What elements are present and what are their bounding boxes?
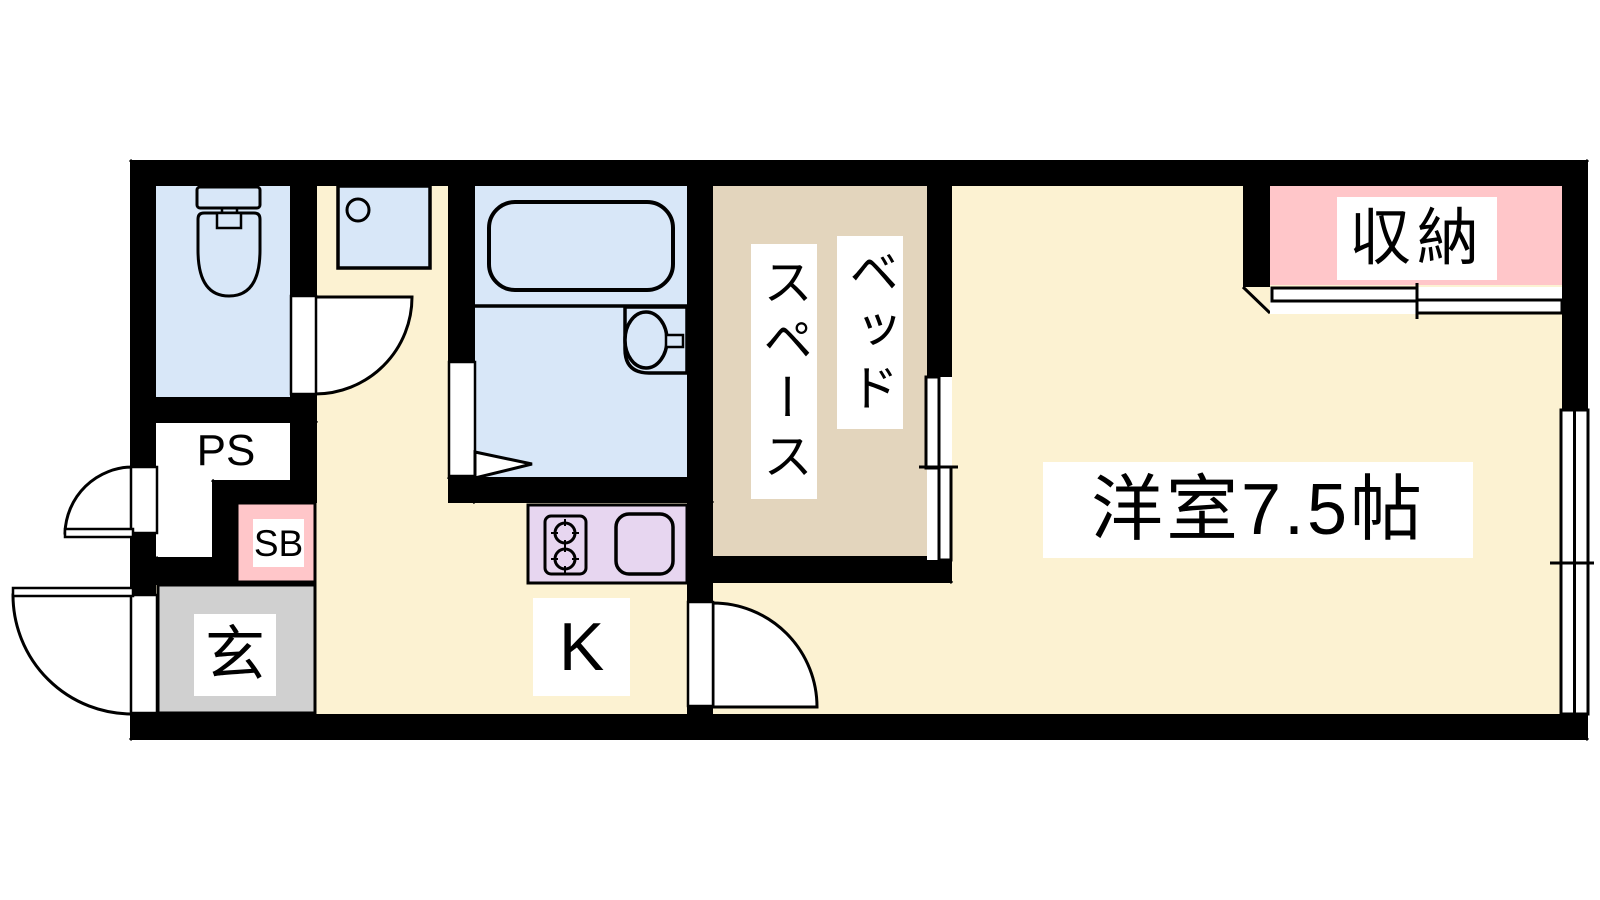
kitchen-label: K <box>533 598 630 696</box>
storage-label: 収納 <box>1337 197 1497 280</box>
floor-plan: 収納 洋室7.5帖 ベッド スペース PS SB 玄 K <box>0 0 1600 900</box>
entrance-label: 玄 <box>194 614 276 696</box>
bed-space-label-left: スペース <box>751 244 817 499</box>
toilet-fixture <box>197 187 260 296</box>
pipe-space-label: PS <box>183 424 269 478</box>
main-room-label: 洋室7.5帖 <box>1043 462 1473 558</box>
kitchen-counter <box>528 505 687 583</box>
bathroom-sink <box>625 307 687 373</box>
washbasin <box>338 186 430 268</box>
shoe-box-label: SB <box>253 519 304 567</box>
bed-space-label-right: ベッド <box>837 236 903 429</box>
bathtub <box>475 202 687 306</box>
closet-sliding-door <box>1270 283 1562 319</box>
